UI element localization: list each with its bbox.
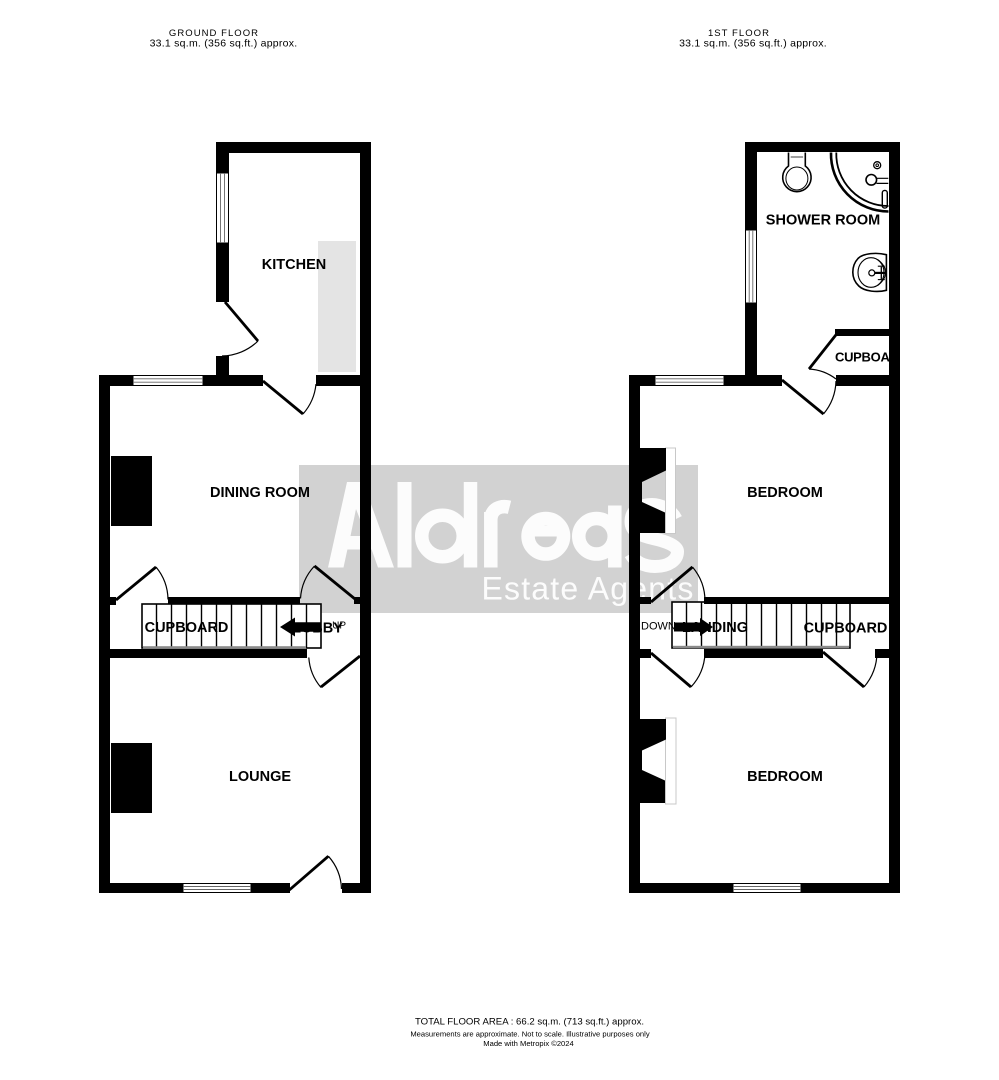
svg-text:CUPBOARD: CUPBOARD bbox=[145, 620, 229, 636]
svg-text:Measurements are approximate.: Measurements are approximate. Not to sca… bbox=[410, 1030, 650, 1039]
svg-text:BEDROOM: BEDROOM bbox=[747, 769, 823, 785]
svg-text:33.1 sq.m. (356 sq.ft.) approx: 33.1 sq.m. (356 sq.ft.) approx. bbox=[150, 38, 298, 50]
svg-text:SHOWER ROOM: SHOWER ROOM bbox=[766, 213, 880, 229]
svg-text:KITCHEN: KITCHEN bbox=[262, 257, 326, 273]
svg-text:DOWN: DOWN bbox=[641, 621, 676, 633]
svg-text:Estate Agents: Estate Agents bbox=[481, 571, 694, 607]
svg-text:BEDROOM: BEDROOM bbox=[747, 485, 823, 501]
svg-text:Made with Metropix ©2024: Made with Metropix ©2024 bbox=[483, 1039, 573, 1048]
svg-text:LOUNGE: LOUNGE bbox=[229, 769, 291, 785]
svg-text:CUPBOARD: CUPBOARD bbox=[804, 621, 888, 637]
svg-text:33.1 sq.m. (356 sq.ft.) approx: 33.1 sq.m. (356 sq.ft.) approx. bbox=[679, 38, 827, 50]
svg-text:DINING ROOM: DINING ROOM bbox=[210, 485, 310, 501]
svg-text:TOTAL FLOOR AREA : 66.2 sq.m.: TOTAL FLOOR AREA : 66.2 sq.m. (713 sq.ft… bbox=[415, 1017, 644, 1028]
svg-text:LOBBY: LOBBY bbox=[292, 621, 343, 637]
svg-text:LANDING: LANDING bbox=[682, 620, 748, 636]
